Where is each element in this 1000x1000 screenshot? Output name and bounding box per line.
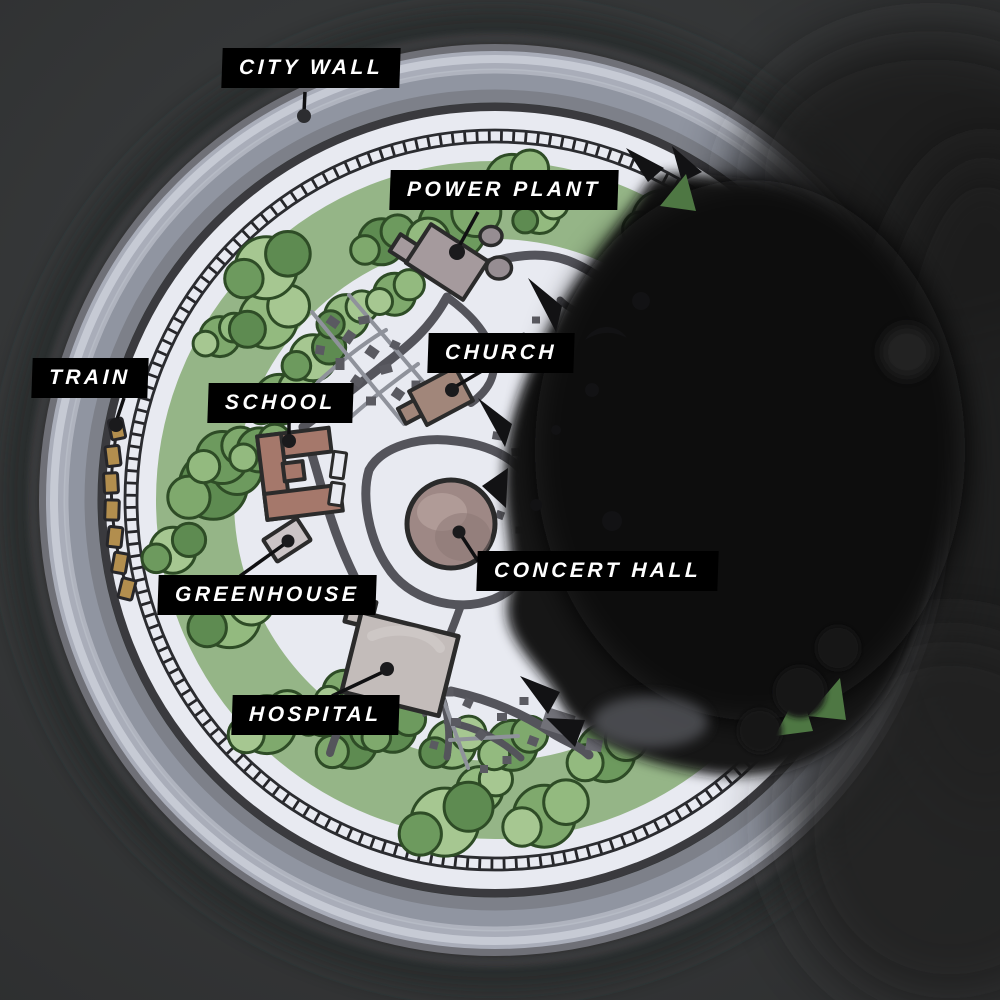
label-power-plant: POWER PLANT: [389, 170, 618, 210]
tree: [367, 289, 393, 315]
label-church-text: CHURCH: [445, 341, 558, 364]
tree: [230, 444, 257, 471]
cooling-tower: [480, 227, 502, 246]
train-car: [111, 552, 128, 574]
school-field: [329, 482, 345, 506]
tree: [351, 236, 380, 265]
city-wall-dot: [297, 109, 311, 123]
tree: [193, 331, 218, 356]
label-greenhouse-text: GREENHOUSE: [175, 583, 360, 606]
label-church: CHURCH: [427, 333, 574, 373]
power-plant-dot: [449, 244, 465, 260]
greenhouse-dot: [282, 535, 295, 548]
tree: [142, 544, 171, 573]
train-car: [103, 473, 118, 494]
tree: [503, 808, 541, 846]
school-field: [330, 451, 346, 479]
label-city-wall-text: CITY WALL: [239, 56, 384, 79]
city-wall-pointer: [304, 92, 305, 112]
train-car: [107, 526, 123, 547]
train-dot: [109, 418, 123, 432]
tree: [399, 813, 441, 855]
small-house: [315, 345, 325, 355]
label-school-text: SCHOOL: [225, 391, 337, 414]
label-hospital-text: HOSPITAL: [249, 703, 382, 726]
cooling-tower: [487, 257, 512, 279]
label-concert-hall: CONCERT HALL: [476, 551, 719, 591]
small-house: [451, 718, 461, 726]
tree: [225, 259, 263, 297]
map-canvas: [0, 0, 1000, 1000]
label-school: SCHOOL: [207, 383, 353, 423]
label-concert-hall-text: CONCERT HALL: [494, 559, 702, 582]
tree: [188, 451, 220, 483]
label-train: TRAIN: [31, 358, 148, 398]
label-power-plant-text: POWER PLANT: [407, 178, 601, 201]
train-car: [118, 578, 136, 601]
label-train-text: TRAIN: [49, 366, 131, 389]
tree: [544, 780, 589, 825]
label-city-wall: CITY WALL: [221, 48, 401, 88]
small-house: [532, 317, 540, 324]
tree: [266, 232, 311, 277]
tree: [444, 782, 493, 831]
tree: [513, 208, 538, 233]
label-greenhouse: GREENHOUSE: [157, 575, 377, 615]
small-house: [480, 765, 488, 773]
small-house: [503, 756, 512, 764]
small-house: [497, 713, 507, 721]
tree: [172, 523, 205, 556]
small-house: [366, 397, 376, 406]
train-car: [105, 445, 121, 467]
church-dot: [445, 383, 459, 397]
train-car: [105, 500, 120, 520]
concert-hall-dot: [453, 526, 466, 539]
small-house: [520, 697, 529, 705]
small-house: [336, 358, 345, 370]
hospital-dot: [380, 662, 394, 676]
ink-gray-swirl: [592, 696, 708, 748]
label-hospital: HOSPITAL: [231, 695, 399, 735]
wall-dark-spot: [881, 326, 933, 378]
tree: [282, 352, 311, 381]
city-map-illustration: CITY WALL POWER PLANT CHURCH TRAIN SCHOO…: [0, 0, 1000, 1000]
tree: [229, 311, 265, 347]
school-dot: [282, 434, 296, 448]
